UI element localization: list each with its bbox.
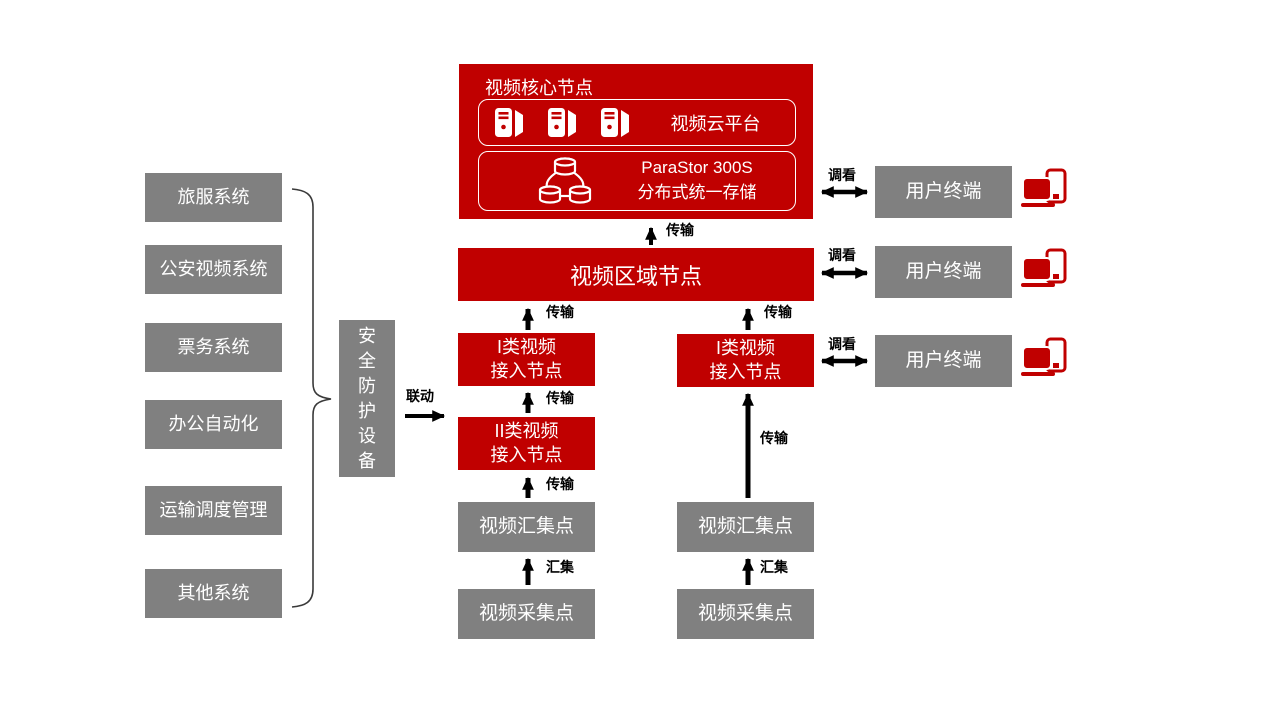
user-terminal-box-1: 用户终端	[875, 166, 1012, 218]
box-label: 办公自动化	[169, 413, 259, 436]
system-box-travel-service: 旅服系统	[145, 173, 282, 222]
user-terminal-box-2: 用户终端	[875, 246, 1012, 298]
box-label: 视频采集点	[479, 602, 574, 627]
box-label-line2: 接入节点	[491, 360, 563, 383]
box-label-line1: I类视频	[716, 337, 775, 360]
parastor-storage-box: ParaStor 300S 分布式统一存储	[478, 151, 796, 211]
brace-connector	[292, 189, 331, 607]
edge-label-linkage: 联动	[406, 386, 434, 406]
box-label: 用户终端	[905, 180, 981, 205]
system-box-office-automation: 办公自动化	[145, 400, 282, 449]
edge-label-transmission: 传输	[546, 388, 574, 408]
box-label: 运输调度管理	[160, 499, 268, 522]
system-box-ticketing: 票务系统	[145, 323, 282, 372]
edge-label-transmission: 传输	[546, 302, 574, 322]
box-label: 用户终端	[905, 260, 981, 285]
left-access-node-2-box: II类视频 接入节点	[458, 417, 595, 470]
system-box-transport-dispatch: 运输调度管理	[145, 486, 282, 535]
right-collection-point-box: 视频采集点	[677, 589, 814, 639]
box-label: 票务系统	[178, 336, 250, 359]
core-node-title: 视频核心节点	[485, 74, 593, 100]
video-region-node-box: 视频区域节点	[458, 248, 814, 301]
left-aggregation-point-box: 视频汇集点	[458, 502, 595, 552]
security-device-box: 安全防护设备	[339, 320, 395, 477]
box-label: 其他系统	[178, 582, 250, 605]
server-icon	[546, 106, 582, 140]
system-box-other: 其他系统	[145, 569, 282, 618]
devices-icon	[1021, 248, 1071, 294]
video-core-node-box: 视频核心节点 视频云平	[459, 64, 813, 219]
edge-label-transmission: 传输	[764, 302, 792, 322]
video-cloud-platform-box: 视频云平台	[478, 99, 796, 146]
edge-label-aggregation: 汇集	[760, 557, 788, 577]
box-label-line2: 接入节点	[491, 444, 563, 467]
box-label-line1: II类视频	[494, 420, 558, 443]
right-access-node-1-box: I类视频 接入节点	[677, 334, 814, 387]
box-label: 公安视频系统	[160, 258, 268, 281]
box-label: 视频区域节点	[570, 259, 702, 291]
cloud-platform-label: 视频云平台	[652, 110, 795, 136]
edge-label-view: 调看	[828, 165, 856, 185]
storage-label: ParaStor 300S 分布式统一存储	[607, 156, 795, 205]
box-label: 视频汇集点	[698, 515, 793, 540]
left-access-node-1-box: I类视频 接入节点	[458, 333, 595, 386]
storage-description: 分布式统一存储	[607, 181, 787, 206]
edge-label-transmission: 传输	[760, 428, 788, 448]
devices-icon	[1021, 168, 1071, 214]
box-label-line1: I类视频	[497, 336, 556, 359]
box-label: 安全防护设备	[357, 324, 377, 474]
server-icon	[599, 106, 635, 140]
edge-label-transmission: 传输	[546, 474, 574, 494]
box-label: 旅服系统	[178, 186, 250, 209]
devices-icon	[1021, 337, 1071, 383]
right-aggregation-point-box: 视频汇集点	[677, 502, 814, 552]
box-label-line2: 接入节点	[710, 361, 782, 384]
box-label: 视频汇集点	[479, 515, 574, 540]
left-collection-point-box: 视频采集点	[458, 589, 595, 639]
user-terminal-box-3: 用户终端	[875, 335, 1012, 387]
box-label: 视频采集点	[698, 602, 793, 627]
system-box-police-video: 公安视频系统	[145, 245, 282, 294]
edge-label-transmission: 传输	[666, 220, 694, 240]
edge-label-view: 调看	[828, 245, 856, 265]
box-label: 用户终端	[905, 349, 981, 374]
edge-label-aggregation: 汇集	[546, 557, 574, 577]
server-icon	[493, 106, 529, 140]
storage-product: ParaStor 300S	[607, 156, 787, 181]
edge-label-view: 调看	[828, 334, 856, 354]
architecture-diagram: 旅服系统 公安视频系统 票务系统 办公自动化 运输调度管理 其他系统 安全防护设…	[0, 0, 1280, 720]
database-cluster-icon	[537, 154, 593, 208]
